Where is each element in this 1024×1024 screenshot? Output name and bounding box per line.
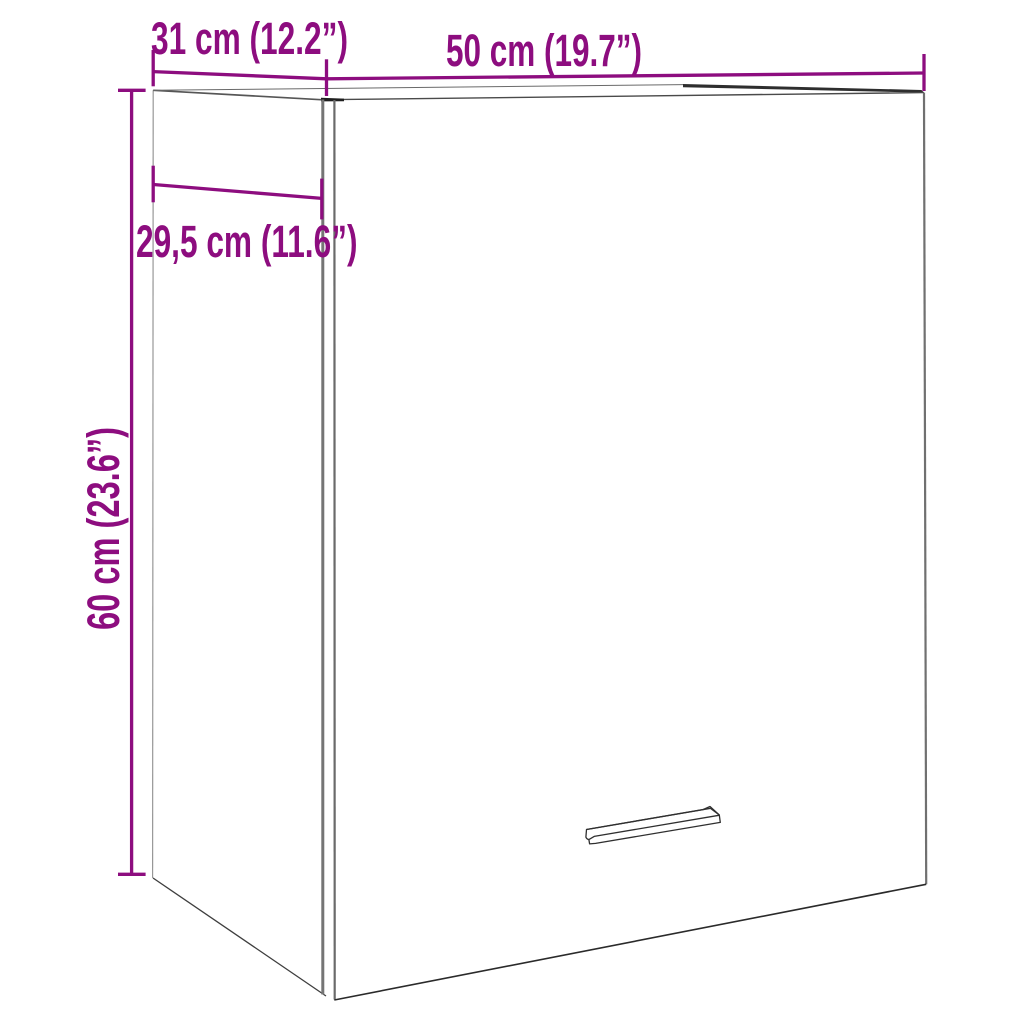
svg-text:60 cm (23.6”): 60 cm (23.6”) xyxy=(78,427,129,630)
svg-text:50 cm (19.7”): 50 cm (19.7”) xyxy=(446,25,642,76)
svg-text:29,5 cm (11.6”): 29,5 cm (11.6”) xyxy=(136,216,358,267)
svg-text:31 cm (12.2”): 31 cm (12.2”) xyxy=(151,13,348,64)
